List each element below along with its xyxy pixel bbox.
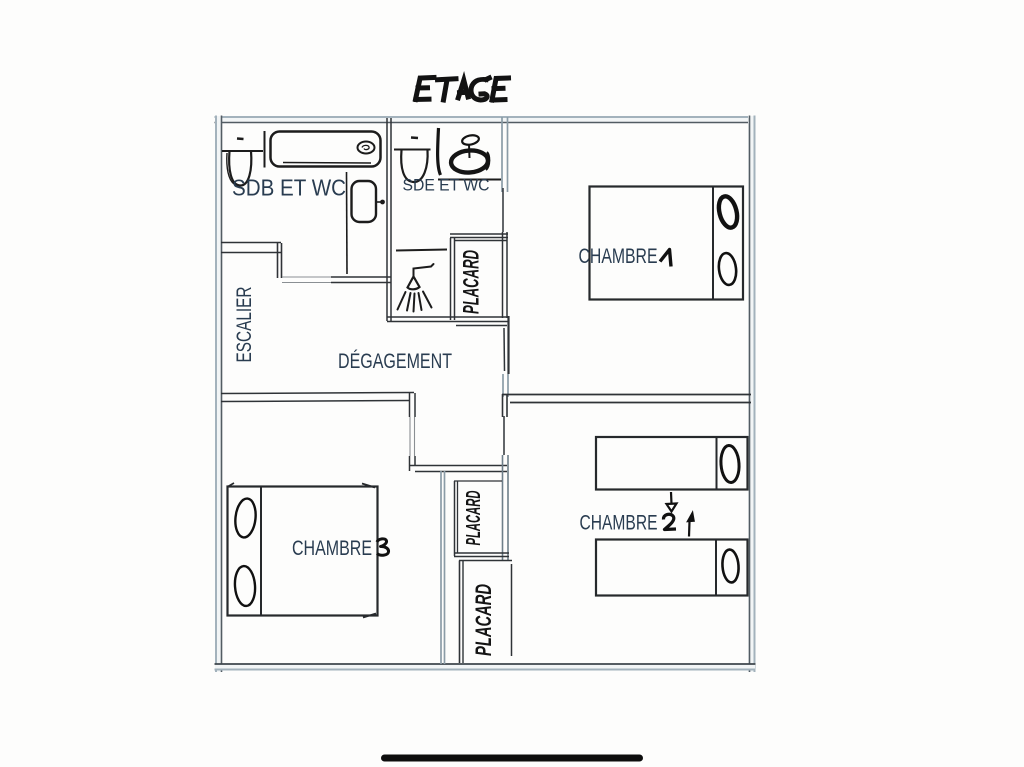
svg-text:SDB ET WC: SDB ET WC [232, 175, 346, 201]
svg-text:PLACARD: PLACARD [471, 584, 496, 656]
svg-text:CHAMBRE: CHAMBRE [580, 511, 658, 535]
svg-text:CHAMBRE: CHAMBRE [292, 537, 372, 560]
svg-text:DÉGAGEMENT: DÉGAGEMENT [338, 350, 452, 373]
svg-text:PLACARD: PLACARD [459, 250, 484, 314]
svg-text:CHAMBRE: CHAMBRE [579, 245, 658, 268]
svg-text:ESCALIER: ESCALIER [232, 287, 256, 363]
svg-text:SDE ET WC: SDE ET WC [403, 176, 490, 195]
svg-text:PLACARD: PLACARD [463, 491, 485, 546]
